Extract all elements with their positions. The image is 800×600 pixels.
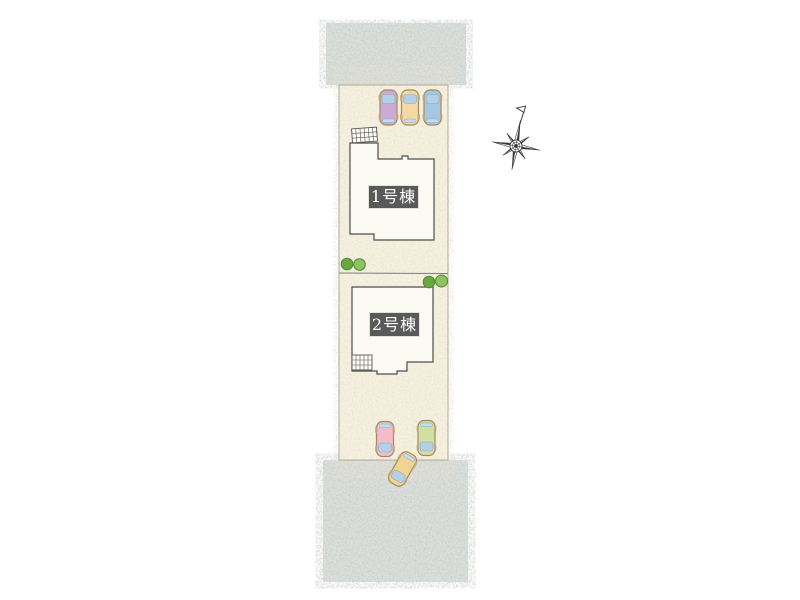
car-icon (379, 90, 399, 125)
compass-rose-icon (488, 101, 547, 173)
car-icon (400, 90, 420, 125)
building-1-label: 1号棟 (369, 186, 418, 208)
lot-boundary-line (339, 273, 448, 274)
balcony-grid-1 (352, 127, 378, 143)
car-icon (417, 421, 437, 456)
site-plan-svg (0, 0, 800, 600)
car-icon (423, 90, 443, 125)
site-plan: 1号棟 2号棟 (0, 0, 800, 600)
car-icon (375, 422, 395, 457)
balcony-grid-2 (352, 355, 372, 370)
road-top (326, 23, 466, 85)
building-2-label: 2号棟 (370, 313, 419, 336)
